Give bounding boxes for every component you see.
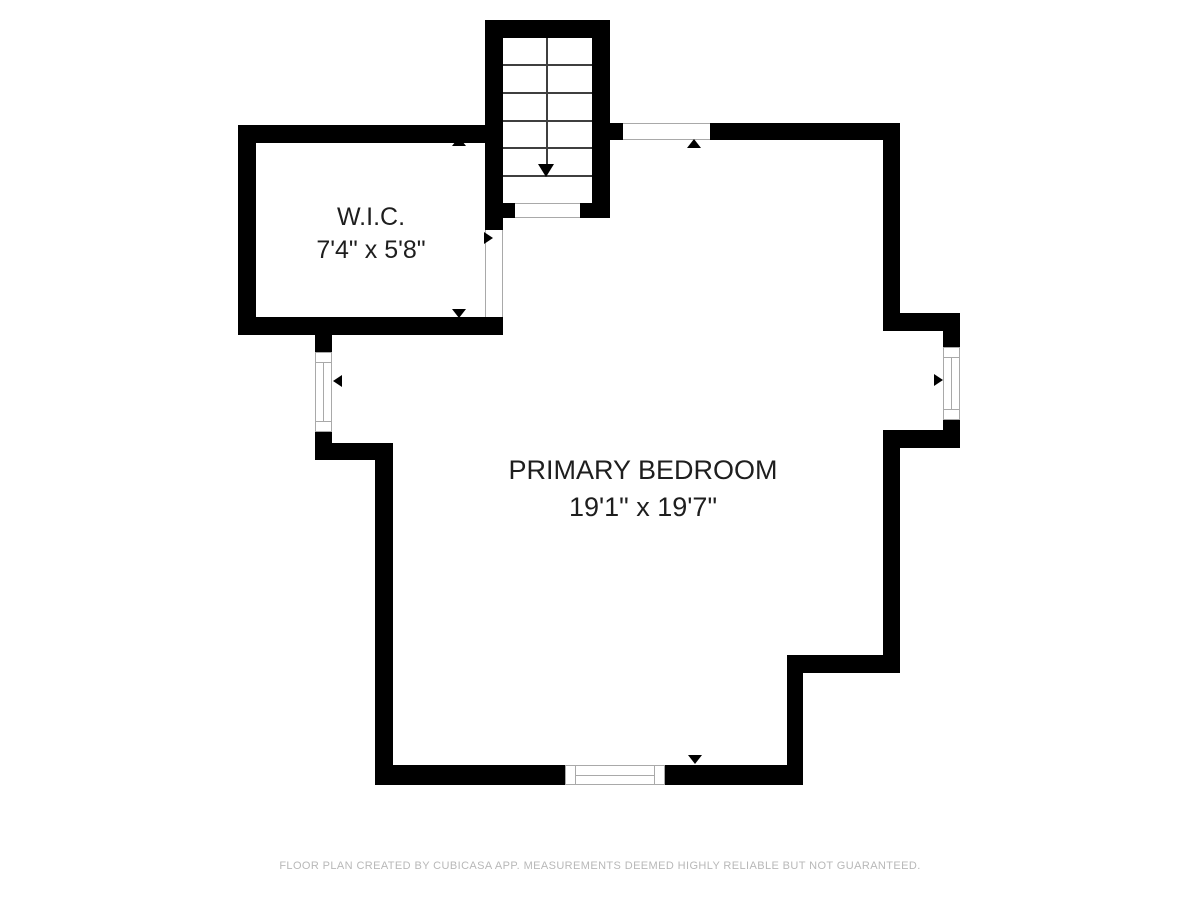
wic-room-dimensions: 7'4" x 5'8" bbox=[243, 234, 499, 267]
stair-wall-right bbox=[592, 20, 610, 218]
bedroom-room-dimensions: 19'1" x 19'7" bbox=[468, 489, 818, 526]
wic-measure-arrow-up bbox=[452, 137, 466, 146]
bedroom-measure-arrow-right bbox=[934, 374, 943, 386]
stair-bottom-stub-left bbox=[503, 203, 515, 218]
bedroom-top-opening bbox=[623, 123, 710, 140]
bedroom-wall-left-lower bbox=[375, 443, 393, 785]
wic-wall-bottom bbox=[238, 317, 503, 335]
bedroom-wall-top-stub bbox=[605, 123, 623, 140]
bedroom-measure-arrow-left bbox=[333, 375, 342, 387]
bedroom-measure-arrow-down bbox=[688, 755, 702, 764]
bedroom-wall-top bbox=[710, 123, 900, 140]
window-right bbox=[943, 347, 960, 420]
bedroom-wall-right-upper bbox=[883, 123, 900, 313]
bedroom-wall-step-right bbox=[787, 655, 900, 673]
window-bottom bbox=[565, 765, 665, 785]
bedroom-label-block: PRIMARY BEDROOM 19'1" x 19'7" bbox=[468, 452, 818, 526]
stair-bottom-stub-right bbox=[580, 203, 610, 218]
floor-plan: W.I.C. 7'4" x 5'8" PRIMARY BEDROOM 19'1"… bbox=[0, 0, 1200, 900]
bedroom-measure-arrow-up bbox=[687, 139, 701, 148]
window-left bbox=[315, 352, 332, 432]
stair-bottom-opening bbox=[515, 203, 580, 218]
stair-down-arrow-icon bbox=[538, 164, 554, 177]
bedroom-room-name: PRIMARY BEDROOM bbox=[468, 452, 818, 489]
footer-disclaimer: FLOOR PLAN CREATED BY CUBICASA APP. MEAS… bbox=[0, 860, 1200, 872]
wic-label-block: W.I.C. 7'4" x 5'8" bbox=[243, 201, 499, 267]
bedroom-wall-right-lower bbox=[883, 448, 900, 673]
stair-direction-line bbox=[546, 38, 548, 166]
wic-room-name: W.I.C. bbox=[243, 201, 499, 234]
wic-measure-arrow-down bbox=[452, 309, 466, 318]
bumpout-wall-bottom bbox=[883, 430, 960, 448]
